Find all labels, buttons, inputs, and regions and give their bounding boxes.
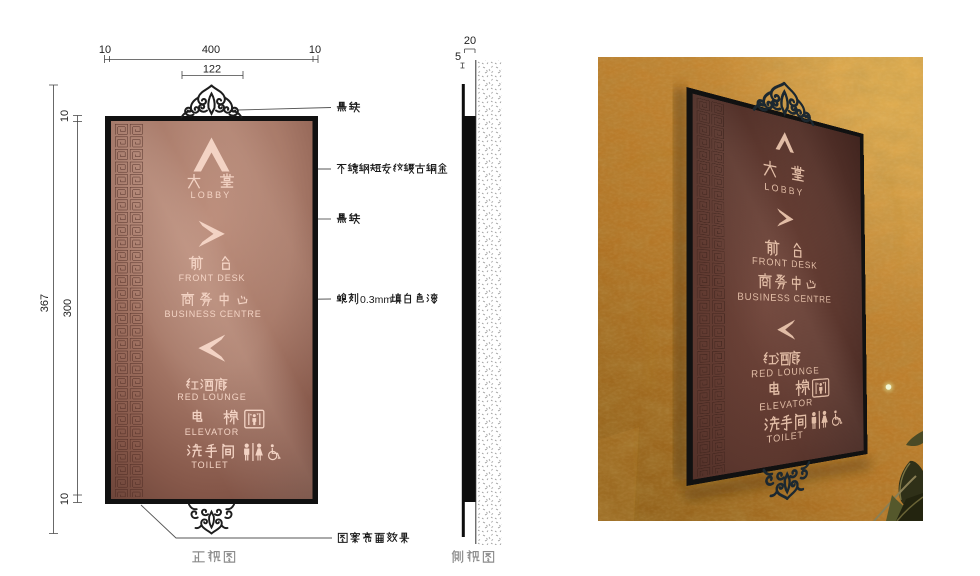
svg-text:RED LOUNGE: RED LOUNGE <box>177 392 247 402</box>
svg-text:300: 300 <box>62 299 74 317</box>
svg-text:LOBBY: LOBBY <box>190 190 231 200</box>
svg-text:0.3mm: 0.3mm <box>360 294 392 306</box>
svg-text:ELEVATOR: ELEVATOR <box>184 427 239 437</box>
svg-text:5: 5 <box>455 51 461 63</box>
svg-text:367: 367 <box>39 294 51 312</box>
svg-text:400: 400 <box>202 44 220 56</box>
svg-text:20: 20 <box>464 35 476 47</box>
svg-text:122: 122 <box>203 64 221 76</box>
svg-text:10: 10 <box>99 44 111 56</box>
svg-text:10: 10 <box>309 44 321 56</box>
svg-text:BUSINESS CENTRE: BUSINESS CENTRE <box>164 309 261 319</box>
svg-text:TOILET: TOILET <box>191 460 228 470</box>
svg-text:FRONT DESK: FRONT DESK <box>178 273 245 283</box>
svg-text:10: 10 <box>59 493 71 505</box>
svg-text:10: 10 <box>59 110 71 122</box>
